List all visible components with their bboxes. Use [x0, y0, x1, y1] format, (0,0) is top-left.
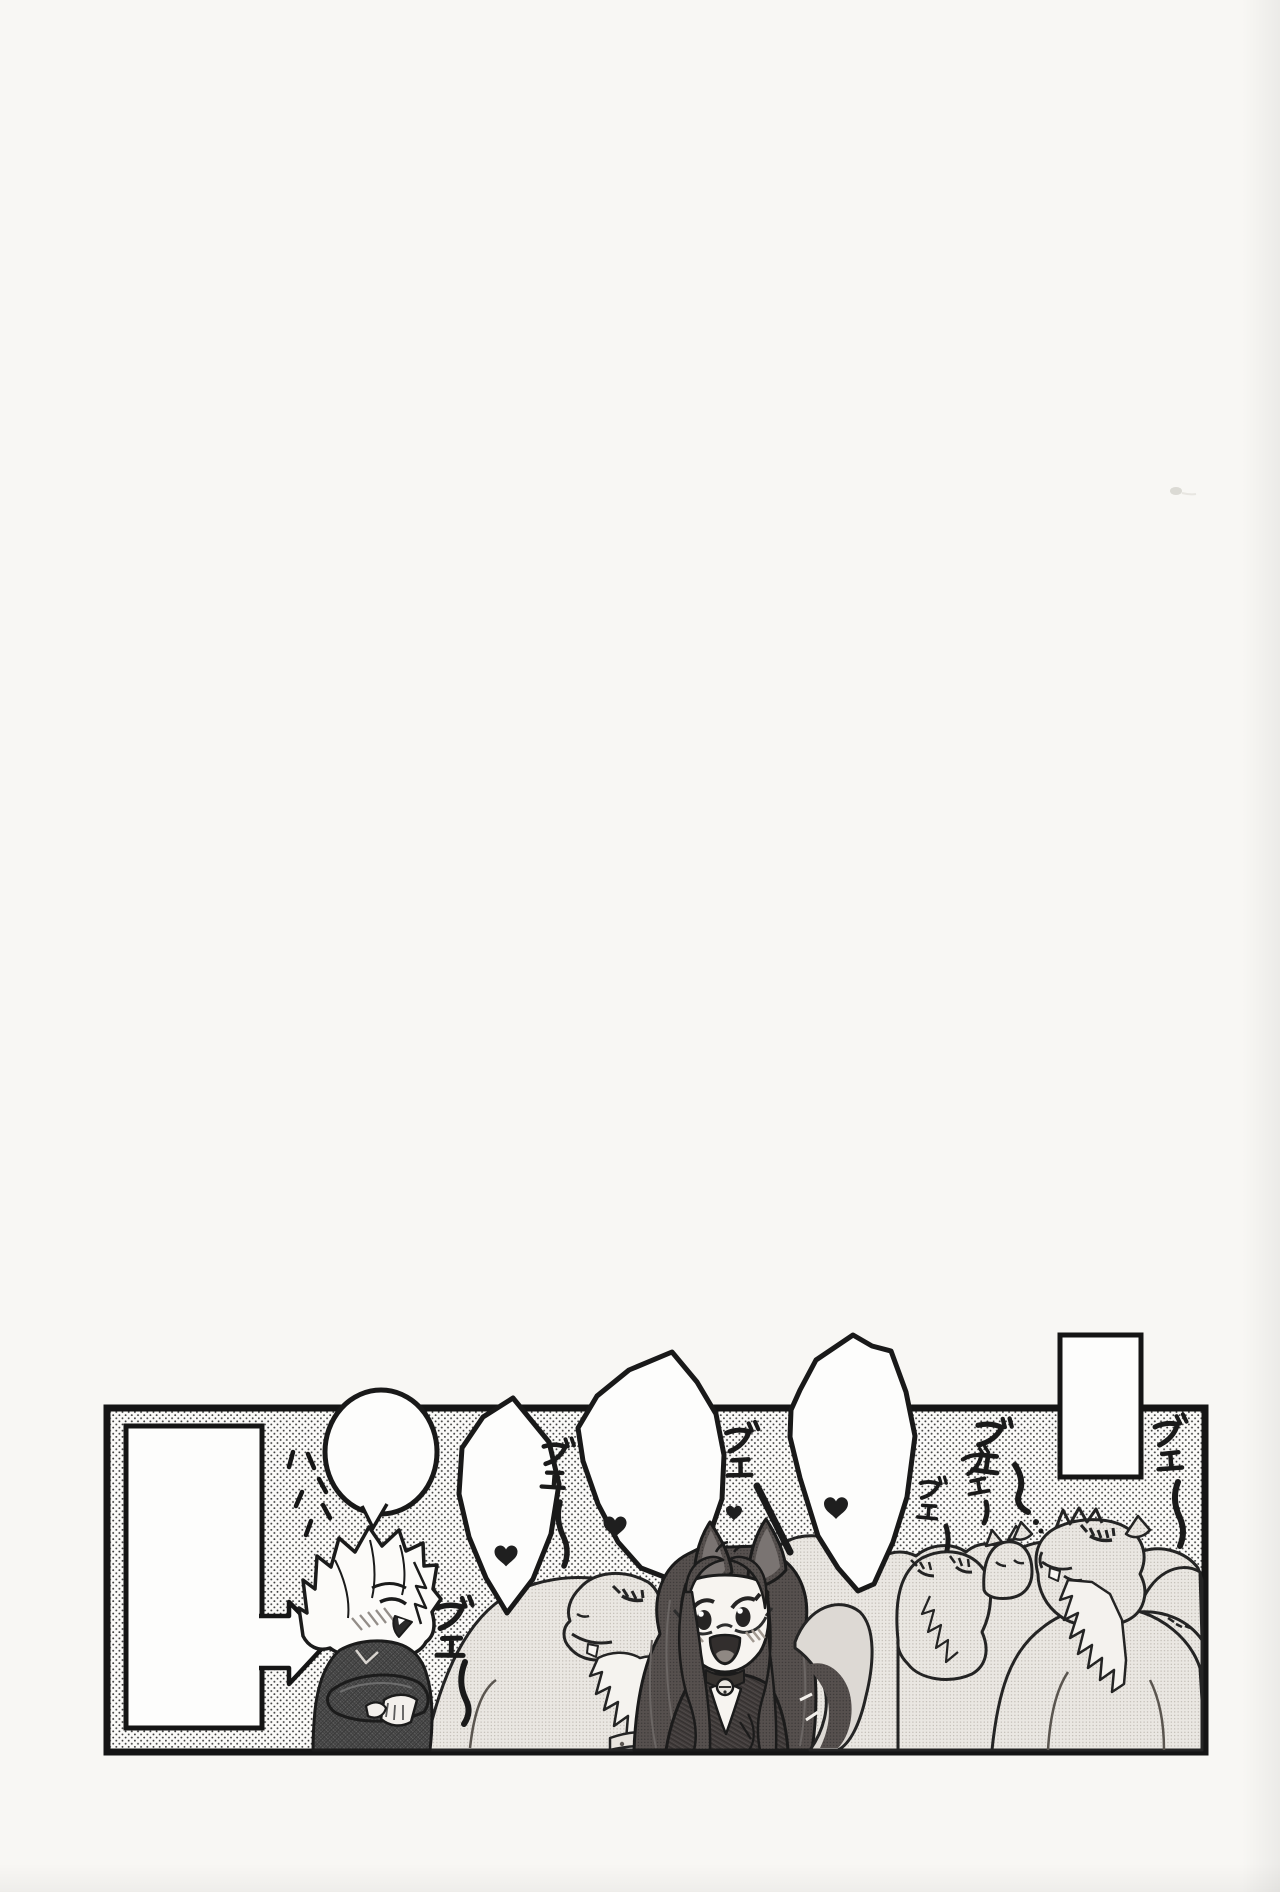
page-edge-shading — [0, 0, 1280, 1892]
comic-panel-art — [0, 0, 1280, 1892]
manga-page: ♥ ♥ ♥ ハハ ブェ〜 ブェ〜 ブェ〜 ブェ〜 ブェ〜 ブェ〜 ブェ〜 ♥ — [0, 0, 1280, 1892]
